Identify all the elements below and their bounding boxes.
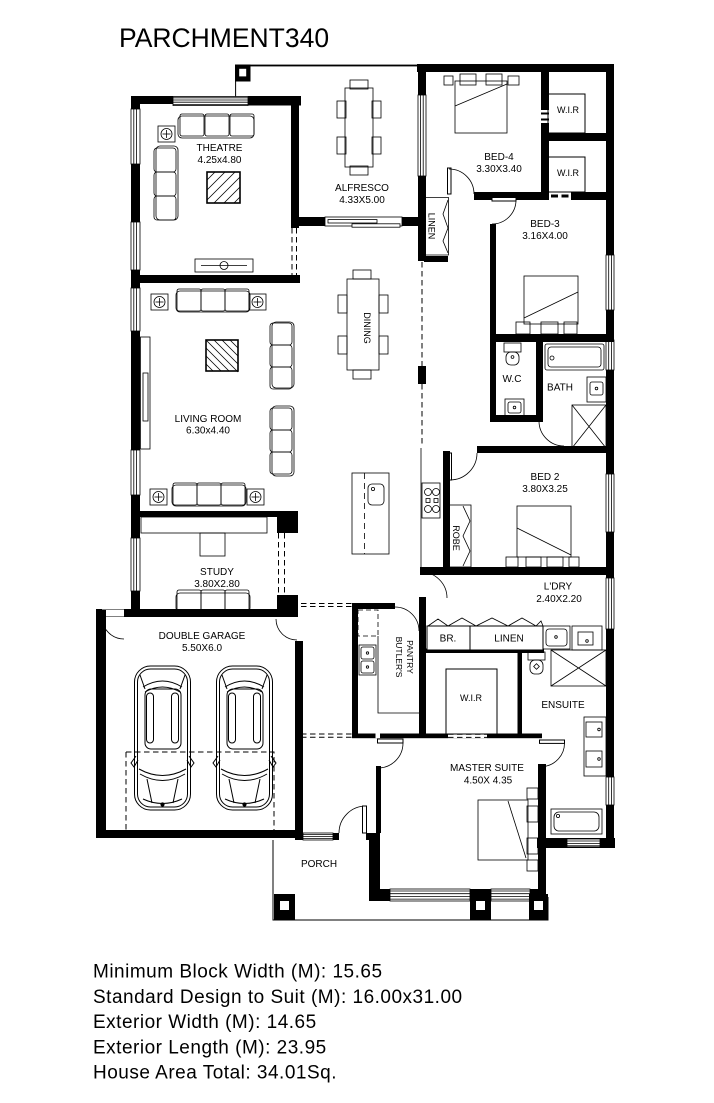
svg-text:3.30X3.40: 3.30X3.40 bbox=[476, 164, 522, 175]
svg-text:LIVING ROOM: LIVING ROOM bbox=[175, 414, 242, 425]
svg-text:3.80X2.80: 3.80X2.80 bbox=[194, 579, 240, 590]
svg-text:MASTER SUITE: MASTER SUITE bbox=[450, 763, 524, 774]
svg-text:6.30x4.40: 6.30x4.40 bbox=[186, 426, 230, 437]
svg-text:LINEN: LINEN bbox=[494, 634, 523, 645]
svg-text:PANTRY: PANTRY bbox=[405, 640, 415, 674]
svg-text:Standard Design to Suit (M): 1: Standard Design to Suit (M): 16.00x31.00 bbox=[93, 987, 463, 1008]
svg-text:W.I.R: W.I.R bbox=[460, 693, 482, 703]
svg-text:4.50X 4.35: 4.50X 4.35 bbox=[464, 776, 513, 787]
svg-text:BED 2: BED 2 bbox=[531, 472, 560, 483]
svg-text:W.I.R: W.I.R bbox=[557, 105, 579, 115]
svg-text:ENSUITE: ENSUITE bbox=[541, 700, 585, 711]
svg-text:BED-4: BED-4 bbox=[484, 152, 514, 163]
svg-text:ROBE: ROBE bbox=[451, 525, 461, 551]
svg-text:L'DRY: L'DRY bbox=[544, 582, 573, 593]
svg-text:2.40X2.20: 2.40X2.20 bbox=[536, 594, 582, 605]
svg-text:BUTLER'S: BUTLER'S bbox=[394, 637, 404, 678]
svg-text:Exterior Width (M): 14.65: Exterior Width (M): 14.65 bbox=[93, 1012, 317, 1033]
svg-text:DINING: DINING bbox=[362, 312, 372, 344]
svg-text:BATH: BATH bbox=[547, 383, 573, 394]
svg-text:5.50X6.0: 5.50X6.0 bbox=[182, 643, 222, 654]
svg-text:W.C: W.C bbox=[503, 374, 522, 385]
svg-text:W.I.R: W.I.R bbox=[557, 168, 579, 178]
svg-text:3.80X3.25: 3.80X3.25 bbox=[522, 484, 568, 495]
svg-text:4.25x4.80: 4.25x4.80 bbox=[198, 155, 242, 166]
svg-text:3.16X4.00: 3.16X4.00 bbox=[522, 231, 568, 242]
svg-text:THEATRE: THEATRE bbox=[197, 143, 243, 154]
svg-text:BED-3: BED-3 bbox=[530, 219, 560, 230]
svg-text:House Area Total: 34.01Sq.: House Area Total: 34.01Sq. bbox=[93, 1063, 337, 1084]
svg-text:STUDY: STUDY bbox=[200, 567, 234, 578]
svg-text:ALFRESCO: ALFRESCO bbox=[335, 183, 389, 194]
svg-text:DOUBLE GARAGE: DOUBLE GARAGE bbox=[159, 631, 246, 642]
svg-text:BR.: BR. bbox=[440, 634, 457, 645]
svg-text:LINEN: LINEN bbox=[427, 213, 437, 240]
svg-text:Minimum Block Width (M): 15.65: Minimum Block Width (M): 15.65 bbox=[93, 962, 383, 983]
svg-text:Exterior Length (M): 23.95: Exterior Length (M): 23.95 bbox=[93, 1037, 327, 1058]
svg-text:4.33X5.00: 4.33X5.00 bbox=[339, 195, 385, 206]
svg-text:PARCHMENT340: PARCHMENT340 bbox=[119, 23, 329, 53]
svg-text:PORCH: PORCH bbox=[301, 859, 337, 870]
